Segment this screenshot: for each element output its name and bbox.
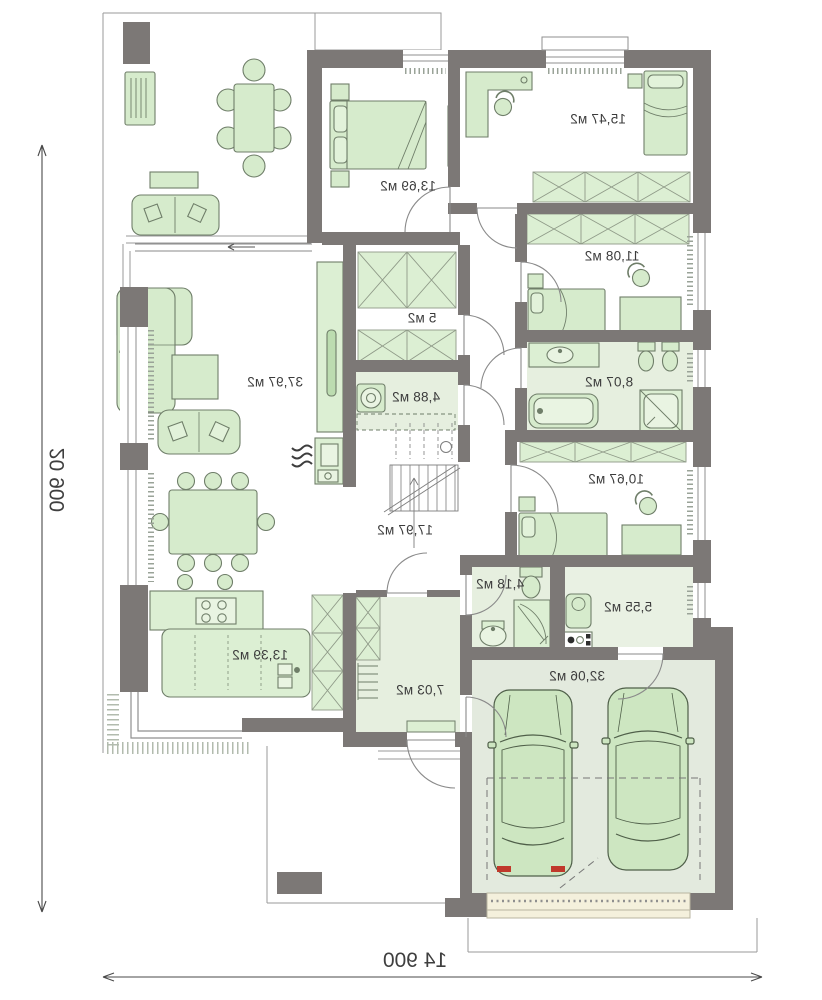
car-icon bbox=[602, 688, 694, 870]
coffee-table-icon bbox=[172, 355, 218, 399]
tech-room-fixtures bbox=[564, 594, 592, 648]
bedroom-middle-furniture bbox=[528, 260, 681, 332]
utility-unit-icon bbox=[564, 632, 592, 648]
grill-icon bbox=[125, 72, 155, 125]
door-closet bbox=[464, 315, 504, 355]
porch-pillar bbox=[445, 898, 487, 917]
washbasin-icon bbox=[529, 343, 599, 367]
room-label-bedroom-top: 13,69 м2 bbox=[380, 179, 436, 194]
garage-door bbox=[487, 893, 690, 918]
outdoor-table-icon bbox=[217, 59, 291, 177]
bathtub-icon bbox=[529, 394, 598, 428]
washbasin-icon bbox=[480, 621, 506, 646]
cooktop-icon bbox=[196, 598, 236, 624]
room-label-kitchen: 13,39 м2 bbox=[232, 648, 288, 663]
bench-icon bbox=[150, 172, 198, 188]
bar-stool-icon bbox=[218, 575, 233, 590]
corner-window bbox=[131, 692, 242, 738]
sofa-icon bbox=[158, 410, 240, 454]
chimney-block bbox=[123, 22, 150, 64]
desk-icon bbox=[620, 297, 681, 332]
dimension-line-left bbox=[38, 145, 46, 912]
dimension-label-width: 14 900 bbox=[383, 949, 447, 973]
office-chair-icon bbox=[624, 260, 653, 290]
bidet-icon bbox=[662, 342, 679, 371]
nightstand-icon bbox=[331, 84, 349, 100]
kitchen-furniture bbox=[150, 575, 310, 698]
door-hall-corridor bbox=[387, 553, 427, 593]
desk-icon bbox=[622, 525, 681, 555]
taillight bbox=[497, 866, 511, 872]
door-laundry bbox=[464, 385, 504, 425]
room-label-hall: 17,97 м2 bbox=[377, 523, 433, 538]
room-label-tech-room: 5,55 м2 bbox=[604, 600, 652, 615]
room-label-bath-small: 4,18 м2 bbox=[476, 577, 524, 592]
desk-lamp-icon bbox=[521, 77, 527, 83]
nightstand-icon bbox=[519, 497, 535, 511]
room-label-wardrobe: 5 м2 bbox=[408, 311, 437, 326]
terrace-slider bbox=[135, 244, 312, 251]
washing-machine-icon bbox=[357, 384, 385, 412]
shoe-cabinet-icon bbox=[407, 721, 455, 732]
room-label-garage: 32,06 м2 bbox=[549, 669, 605, 684]
room-label-bedroom-lower: 10,67 м2 bbox=[588, 472, 644, 487]
terrace-hatch-edge bbox=[107, 694, 250, 748]
bar-stool-icon bbox=[178, 575, 193, 590]
shower-icon bbox=[640, 390, 682, 432]
toilet-icon bbox=[638, 342, 655, 371]
bedroom-lower-furniture bbox=[519, 488, 681, 557]
nightstand-icon bbox=[331, 171, 349, 187]
office-chair-icon bbox=[492, 89, 516, 117]
room-label-bedroom-corner: 15,47 м2 bbox=[570, 112, 626, 127]
room-label-living: 37,97 м2 bbox=[247, 375, 303, 390]
sofa-icon bbox=[132, 195, 219, 235]
dining-table-icon bbox=[152, 473, 275, 572]
terrace-furniture bbox=[123, 22, 291, 235]
bedroom-top-furniture bbox=[330, 84, 458, 187]
kitchen-island-icon bbox=[162, 629, 310, 697]
floor-plan-drawing bbox=[0, 0, 822, 1000]
nightstand-icon bbox=[628, 74, 642, 88]
nightstand-icon bbox=[528, 274, 543, 288]
room-label-corridor: 7,03 м2 bbox=[396, 683, 444, 698]
taillight bbox=[551, 866, 565, 872]
dimension-label-depth: 20 900 bbox=[46, 425, 70, 535]
door-bathroom-main bbox=[481, 348, 521, 388]
floor-plan-canvas: 37,97 м2 13,69 м2 15,47 м2 11,08 м2 8,07… bbox=[0, 0, 822, 1000]
fireplace-icon bbox=[292, 438, 343, 484]
room-label-bedroom-middle: 11,08 м2 bbox=[585, 249, 640, 264]
boiler-icon bbox=[566, 594, 591, 628]
single-bed-icon bbox=[519, 513, 607, 557]
door-entrance bbox=[407, 740, 455, 788]
tv-sideboard-icon bbox=[317, 262, 343, 432]
shower-icon bbox=[514, 600, 550, 648]
single-bed-icon bbox=[528, 289, 605, 332]
office-chair-icon bbox=[632, 488, 660, 518]
room-label-bathroom-main: 8,07 м2 bbox=[585, 375, 633, 390]
dimension-line-bottom bbox=[103, 973, 762, 981]
plot-pillar bbox=[277, 872, 322, 894]
room-label-laundry: 4,88 м2 bbox=[392, 390, 440, 405]
door-bedroom-top bbox=[405, 187, 450, 232]
single-bed-icon bbox=[644, 71, 687, 155]
door-bedroom-corner bbox=[477, 208, 517, 248]
double-bed-icon bbox=[330, 101, 426, 169]
